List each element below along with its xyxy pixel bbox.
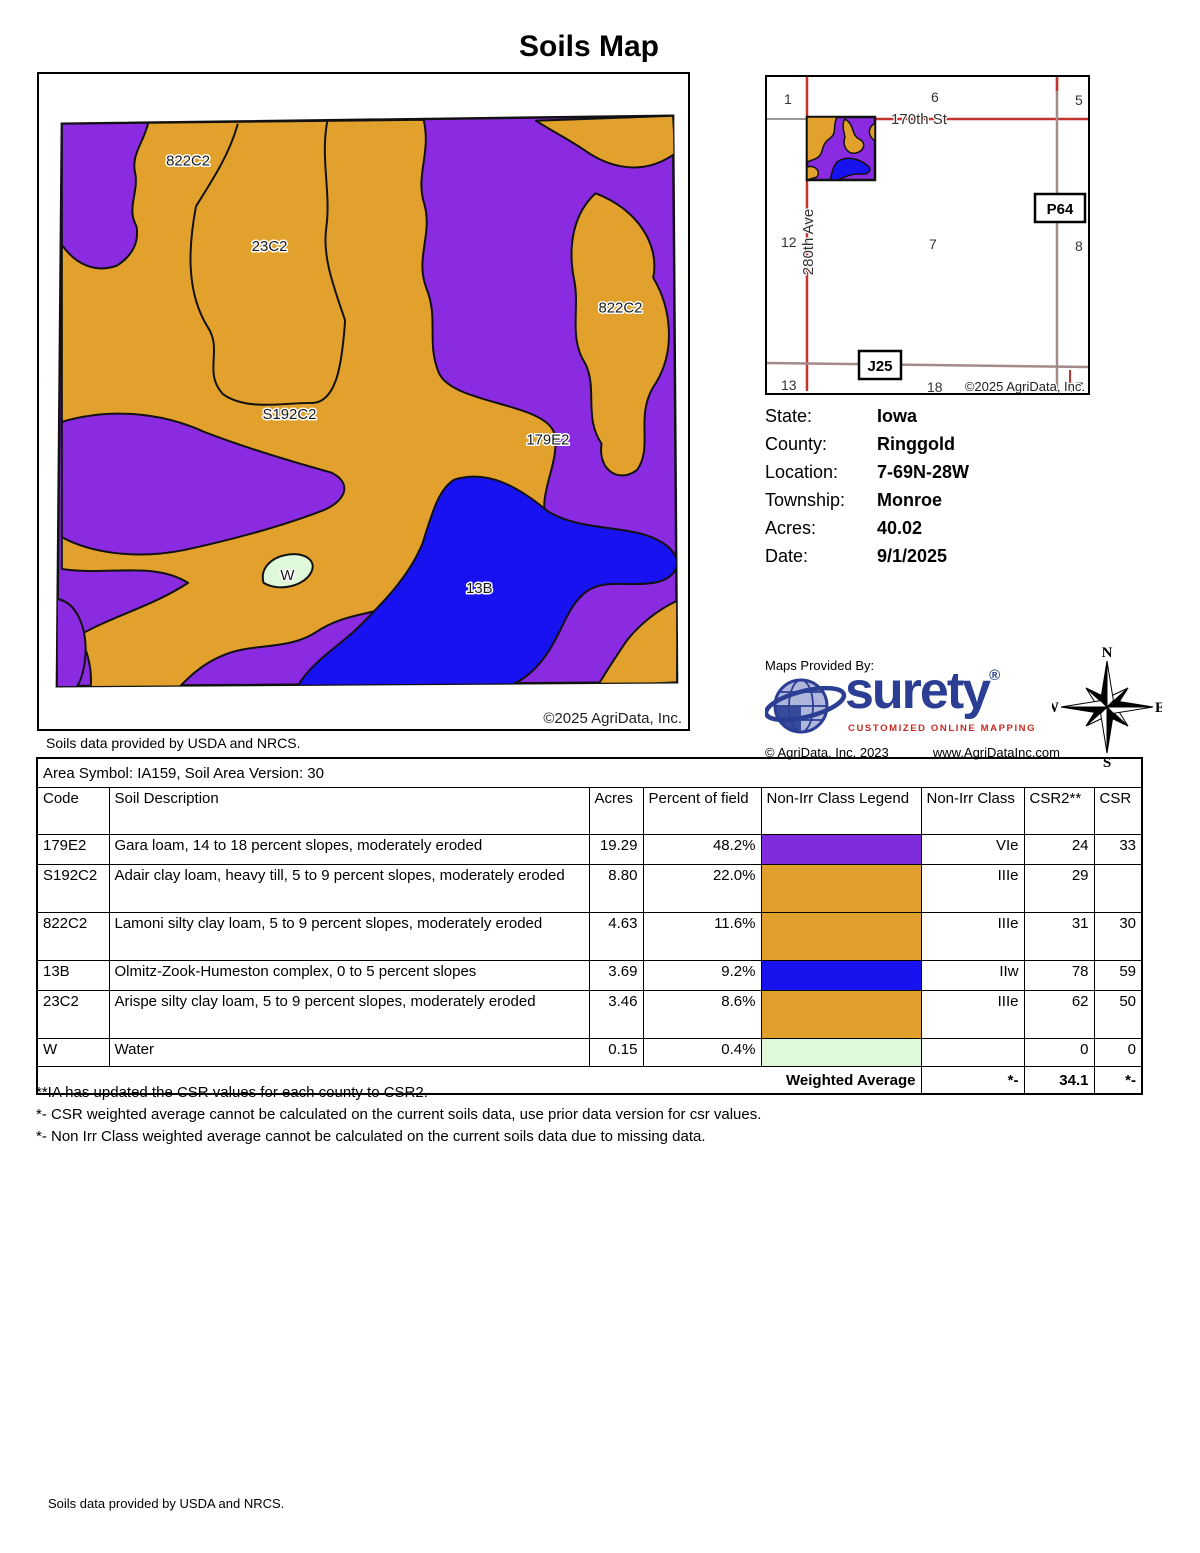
info-row-date: Date: 9/1/2025 (765, 542, 1095, 570)
soil-csr2: 0 (1024, 1039, 1094, 1067)
soil-non-irr-class: IIIe (921, 913, 1024, 961)
soil-legend-swatch (761, 865, 921, 913)
soil-non-irr-class: IIIe (921, 865, 1024, 913)
info-label: Township: (765, 486, 877, 514)
soil-acres: 0.15 (589, 1039, 643, 1067)
soil-code: W (37, 1039, 109, 1067)
info-label: County: (765, 430, 877, 458)
soil-csr2: 29 (1024, 865, 1094, 913)
soil-table-row: 179E2Gara loam, 14 to 18 percent slopes,… (37, 835, 1142, 865)
provider-block: Maps Provided By: surety® CUSTOMIZED ONL… (765, 658, 1065, 760)
soil-percent: 48.2% (643, 835, 761, 865)
col-header-percent: Percent of field (643, 788, 761, 835)
col-header-code: Code (37, 788, 109, 835)
soil-table-row: 13BOlmitz-Zook-Humeston complex, 0 to 5 … (37, 961, 1142, 991)
weighted-nonirr: *- (921, 1067, 1024, 1095)
map-caption: Soils data provided by USDA and NRCS. (46, 735, 300, 751)
info-label: Acres: (765, 514, 877, 542)
footnotes: **IA has updated the CSR values for each… (36, 1082, 761, 1148)
weighted-csr: *- (1094, 1067, 1142, 1095)
info-row-location: Location: 7-69N-28W (765, 458, 1095, 486)
shield-p64: P64 (1035, 194, 1085, 222)
road-label-170th-st: 170th St (891, 111, 948, 128)
main-map-copyright: ©2025 AgriData, Inc. (543, 710, 682, 727)
soil-csr2: 24 (1024, 835, 1094, 865)
locator-canvas: 1 6 5 12 7 8 13 18 17 170th St 280th Ave… (767, 77, 1088, 393)
map-label-s192c2: S192C2 (263, 407, 317, 423)
soil-csr: 33 (1094, 835, 1142, 865)
page-footer: Soils data provided by USDA and NRCS. (48, 1496, 284, 1511)
section-number-13: 13 (781, 377, 797, 393)
map-label-822c2-nw: 822C2 (166, 153, 210, 169)
soil-csr: 30 (1094, 913, 1142, 961)
surety-logo: surety® CUSTOMIZED ONLINE MAPPING (765, 675, 1065, 739)
compass-w: W (1052, 700, 1059, 716)
soil-code: 13B (37, 961, 109, 991)
col-header-nonirr: Non-Irr Class (921, 788, 1024, 835)
map-label-13b: 13B (466, 581, 493, 597)
soil-percent: 11.6% (643, 913, 761, 961)
soil-description: Gara loam, 14 to 18 percent slopes, mode… (109, 835, 589, 865)
soil-table-row: 822C2Lamoni silty clay loam, 5 to 9 perc… (37, 913, 1142, 961)
soil-non-irr-class: VIe (921, 835, 1024, 865)
weighted-csr2: 34.1 (1024, 1067, 1094, 1095)
main-soil-map: 822C2 23C2 822C2 S192C2 179E2 13B W ©202… (37, 72, 690, 731)
col-header-acres: Acres (589, 788, 643, 835)
soil-non-irr-class: IIw (921, 961, 1024, 991)
road-j25 (767, 363, 1088, 367)
info-value: 40.02 (877, 514, 922, 542)
soil-description: Olmitz-Zook-Humeston complex, 0 to 5 per… (109, 961, 589, 991)
soil-non-irr-class: IIIe (921, 991, 1024, 1039)
soil-percent: 22.0% (643, 865, 761, 913)
soil-csr2: 78 (1024, 961, 1094, 991)
soil-percent: 8.6% (643, 991, 761, 1039)
globe-icon (765, 675, 849, 739)
compass-rose-icon: N S W E (1052, 645, 1162, 769)
soil-csr2: 62 (1024, 991, 1094, 1039)
soil-csr: 0 (1094, 1039, 1142, 1067)
soil-code: 23C2 (37, 991, 109, 1039)
section-number-18: 18 (927, 379, 943, 393)
soil-acres: 3.69 (589, 961, 643, 991)
soil-csr: 59 (1094, 961, 1142, 991)
soil-csr (1094, 865, 1142, 913)
soil-acres: 8.80 (589, 865, 643, 913)
footnote-csr2: **IA has updated the CSR values for each… (36, 1082, 761, 1104)
info-row-county: County: Ringgold (765, 430, 1095, 458)
col-header-csr2: CSR2** (1024, 788, 1094, 835)
section-number-6: 6 (931, 89, 939, 105)
soil-description: Arispe silty clay loam, 5 to 9 percent s… (109, 991, 589, 1039)
footnote-non-irr: *- Non Irr Class weighted average cannot… (36, 1126, 761, 1148)
info-label: State: (765, 402, 877, 430)
area-symbol-row: Area Symbol: IA159, Soil Area Version: 3… (37, 758, 1142, 788)
footnote-csr: *- CSR weighted average cannot be calcul… (36, 1104, 761, 1126)
info-value: 7-69N-28W (877, 458, 969, 486)
parcel-thumbnail (807, 117, 875, 180)
info-label: Date: (765, 542, 877, 570)
map-label-w: W (280, 568, 294, 584)
svg-text:J25: J25 (867, 358, 892, 375)
soils-table: Area Symbol: IA159, Soil Area Version: 3… (36, 757, 1143, 1095)
soil-description: Lamoni silty clay loam, 5 to 9 percent s… (109, 913, 589, 961)
soil-legend-swatch (761, 1039, 921, 1067)
soil-table-row: 23C2Arispe silty clay loam, 5 to 9 perce… (37, 991, 1142, 1039)
soil-table-row: WWater0.150.4%00 (37, 1039, 1142, 1067)
svg-text:P64: P64 (1047, 201, 1074, 218)
soil-legend-swatch (761, 913, 921, 961)
info-value: Ringgold (877, 430, 955, 458)
shield-j25: J25 (859, 351, 901, 379)
info-value: Monroe (877, 486, 942, 514)
section-number-1: 1 (784, 91, 792, 107)
info-row-state: State: Iowa (765, 402, 1095, 430)
page: Soils Map (0, 0, 1200, 1553)
info-value: 9/1/2025 (877, 542, 947, 570)
soil-csr: 50 (1094, 991, 1142, 1039)
soil-description: Water (109, 1039, 589, 1067)
compass-e: E (1155, 700, 1162, 716)
soil-acres: 3.46 (589, 991, 643, 1039)
page-title: Soils Map (37, 30, 1141, 64)
soil-description: Adair clay loam, heavy till, 5 to 9 perc… (109, 865, 589, 913)
locator-copyright: ©2025 AgriData, Inc. (965, 379, 1085, 393)
soil-code: 822C2 (37, 913, 109, 961)
soil-percent: 0.4% (643, 1039, 761, 1067)
area-symbol: Area Symbol: IA159, Soil Area Version: 3… (37, 758, 1142, 788)
info-row-acres: Acres: 40.02 (765, 514, 1095, 542)
compass-n: N (1102, 645, 1113, 661)
soil-legend-swatch (761, 961, 921, 991)
map-label-822c2-e: 822C2 (598, 301, 642, 317)
section-number-12: 12 (781, 234, 797, 250)
locator-map: 1 6 5 12 7 8 13 18 17 170th St 280th Ave… (765, 75, 1090, 395)
surety-brand: surety (845, 662, 989, 720)
soil-legend-swatch (761, 835, 921, 865)
col-header-csr: CSR (1094, 788, 1142, 835)
soil-csr2: 31 (1024, 913, 1094, 961)
road-label-280th-ave: 280th Ave (800, 209, 817, 275)
surety-tagline: CUSTOMIZED ONLINE MAPPING (848, 723, 1036, 734)
soil-code: S192C2 (37, 865, 109, 913)
col-header-legend: Non-Irr Class Legend (761, 788, 921, 835)
surety-wordmark: surety® (845, 661, 1000, 721)
table-header-row: Code Soil Description Acres Percent of f… (37, 788, 1142, 835)
section-number-7: 7 (929, 236, 937, 252)
info-value: Iowa (877, 402, 917, 430)
soil-table-row: S192C2Adair clay loam, heavy till, 5 to … (37, 865, 1142, 913)
parcel-info: State: Iowa County: Ringgold Location: 7… (765, 402, 1095, 570)
soil-legend-swatch (761, 991, 921, 1039)
soil-non-irr-class (921, 1039, 1024, 1067)
map-label-23c2: 23C2 (252, 239, 288, 255)
info-label: Location: (765, 458, 877, 486)
section-number-5: 5 (1075, 92, 1083, 108)
soil-code: 179E2 (37, 835, 109, 865)
col-header-description: Soil Description (109, 788, 589, 835)
registered-mark: ® (989, 667, 1000, 684)
section-number-8: 8 (1075, 238, 1083, 254)
soil-acres: 19.29 (589, 835, 643, 865)
soil-acres: 4.63 (589, 913, 643, 961)
info-row-township: Township: Monroe (765, 486, 1095, 514)
soil-percent: 9.2% (643, 961, 761, 991)
map-label-179e2: 179E2 (526, 433, 569, 449)
soil-map-canvas: 822C2 23C2 822C2 S192C2 179E2 13B W (39, 74, 688, 729)
